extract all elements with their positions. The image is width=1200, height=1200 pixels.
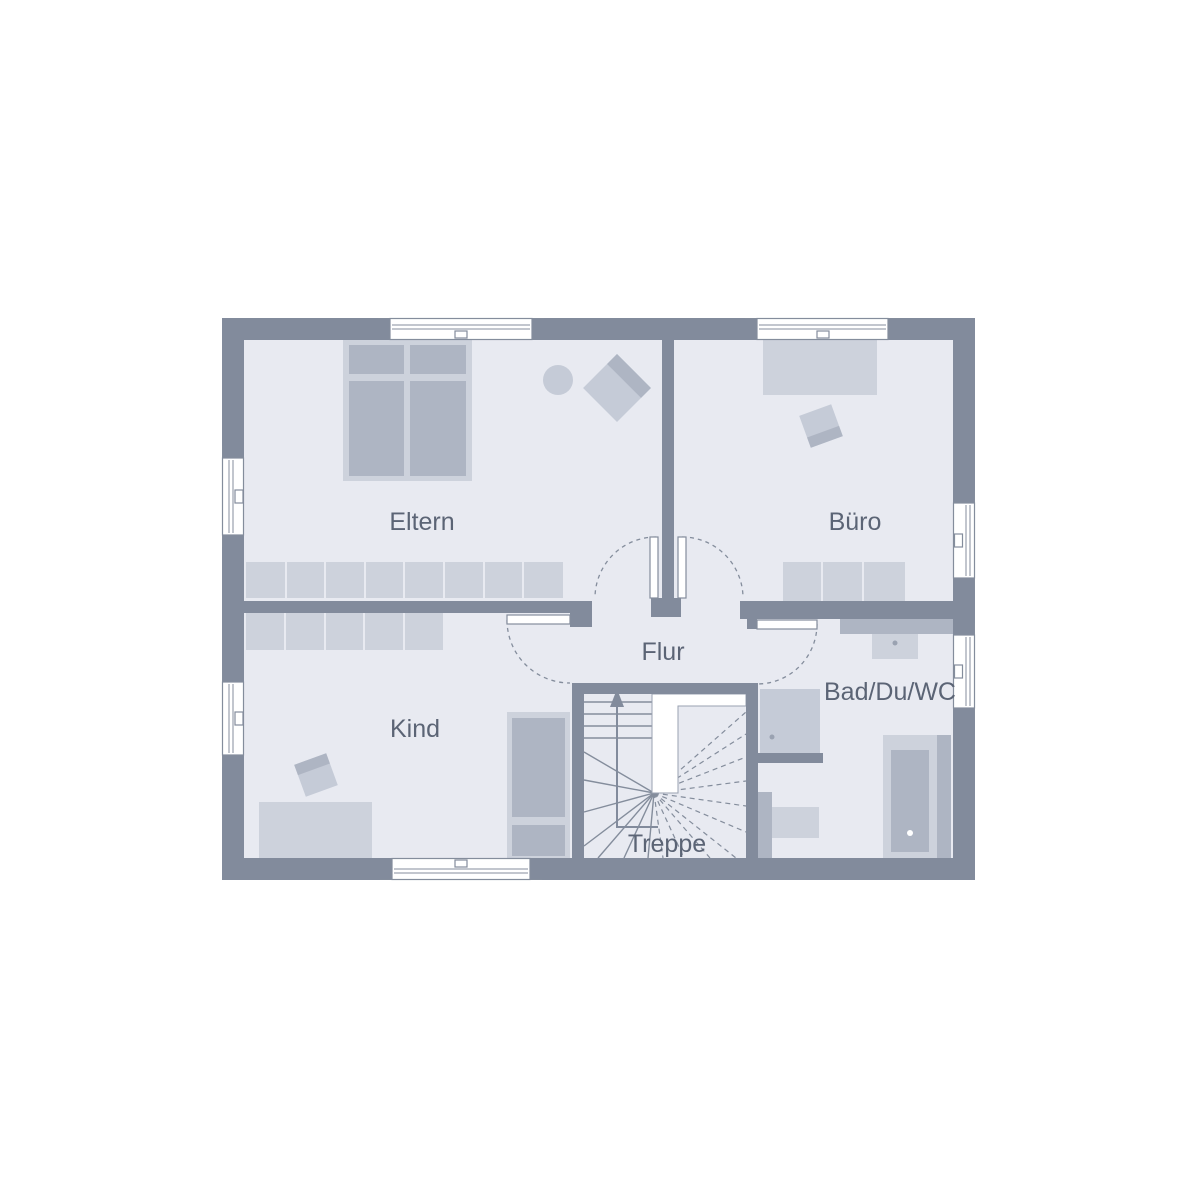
desk [763,340,877,395]
shower [760,689,820,753]
window-handle [455,860,467,867]
bathtub-drain [907,830,913,836]
floor-plan: Eltern Büro Kind Flur Bad/Du/WC Treppe [0,0,1200,1200]
wardrobe-eltern [246,562,563,598]
desk-kind [259,802,372,858]
shower-drain [770,735,775,740]
wall-stair-right [746,683,758,858]
window-handle [235,490,243,503]
bed-mattress-right [410,381,466,476]
single-bed-foot [512,825,565,856]
window-handle [955,665,963,678]
wall-eltern-buero [662,340,674,598]
window-handle [955,534,963,547]
wall-east [953,340,975,858]
washbasin [872,634,918,659]
floor-plan-page: Eltern Büro Kind Flur Bad/Du/WC Treppe [0,0,1200,1200]
bed-pillow-left [349,345,404,374]
room-label-flur: Flur [641,638,684,666]
wall-west [222,340,244,858]
window-handle [817,331,829,338]
wall-stair-top [572,683,758,694]
window-kind-west [223,670,244,767]
wc-bowl [772,807,819,838]
bed-pillow-right [410,345,466,374]
vanity-counter [840,619,953,634]
wardrobe-kind [246,613,443,650]
room-label-treppe: Treppe [628,830,706,858]
wall-buero-bad [740,601,953,619]
window-buero-north [745,319,900,340]
wc-cistern [758,792,772,858]
window-bad-east [954,623,975,720]
door-panel [757,620,817,629]
door-panel [678,537,686,598]
wall-stub-kind [570,613,592,627]
window-eltern-west [223,446,244,547]
round-stool [543,365,573,395]
room-label-eltern: Eltern [389,508,454,536]
sideboard-buero [783,562,905,601]
door-panel [650,537,658,598]
room-label-kind: Kind [390,715,440,743]
bed-mattress-left [349,381,404,476]
window-kind-south [380,859,542,880]
wall-stub-center [651,598,681,617]
door-panel [507,615,570,624]
room-label-bad: Bad/Du/WC [824,678,956,706]
wall-stub-bad [747,619,757,629]
single-bed-mattress [512,718,565,817]
wall-stair-left [572,683,584,858]
wall-eltern-kind [244,601,592,613]
wall-south [222,858,975,880]
window-buero-east [954,491,975,590]
bathtub-shelf [937,735,951,860]
washbasin-drain [893,641,898,646]
bathtub-basin [891,750,929,852]
window-eltern-north [378,319,544,340]
window-handle [455,331,467,338]
room-label-buero: Büro [829,508,882,536]
wall-shower-stub [758,753,823,763]
window-handle [235,712,243,725]
